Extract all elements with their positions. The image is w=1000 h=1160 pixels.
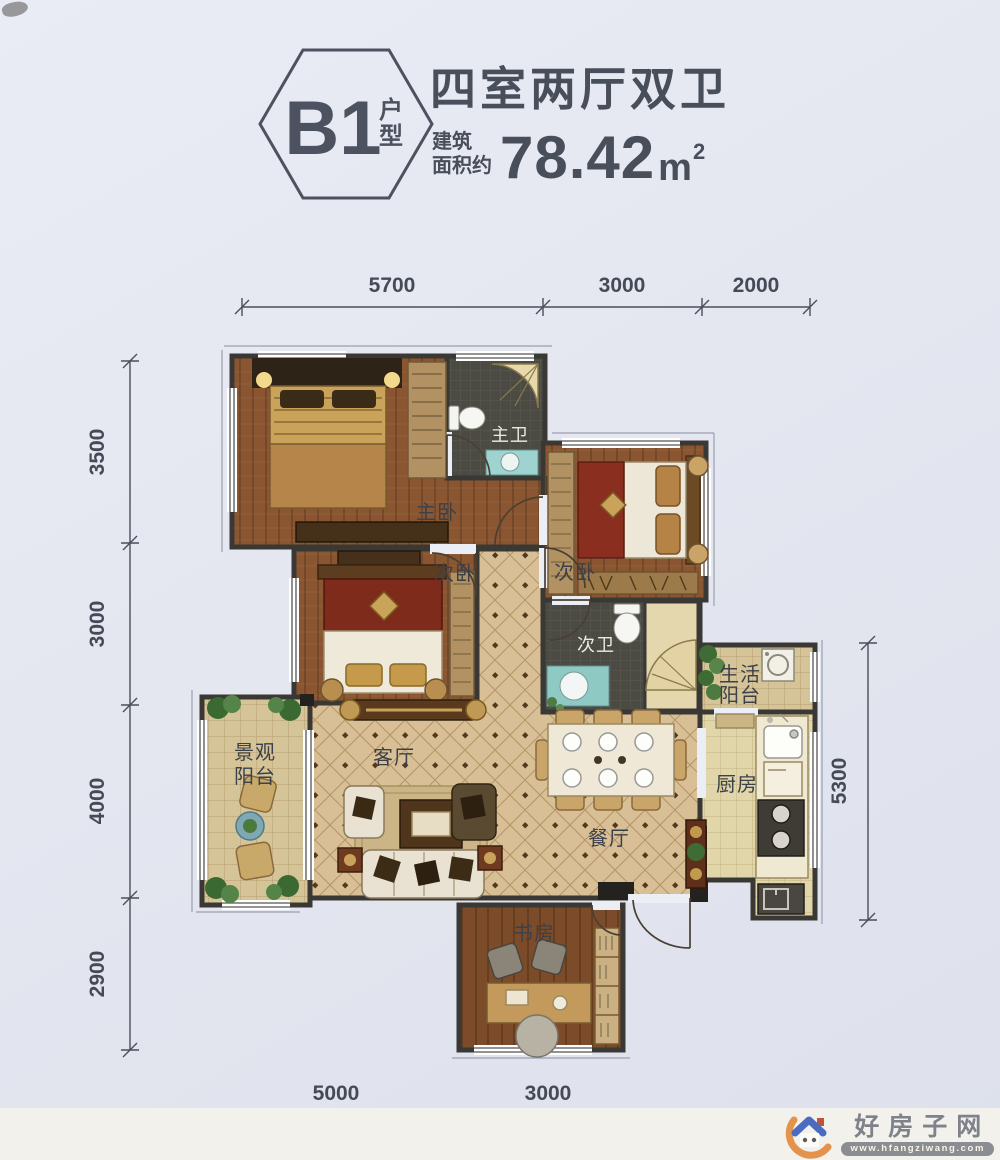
watermark-texts: 好房子网 www.hfangziwang.com xyxy=(841,1114,994,1157)
floorplan-drawing: 主卧 主卫 次卧 次卧 次卫 客厅 餐厅 厨房 书房 生活 阳台 景观 阳台 xyxy=(0,0,1000,1160)
label-master-bath: 主卫 xyxy=(491,425,529,445)
label-view-balcony-2: 阳台 xyxy=(234,765,276,788)
window-bedroom-left-side xyxy=(289,578,299,682)
site-url: www.hfangziwang.com xyxy=(841,1142,994,1156)
label-dining-room: 餐厅 xyxy=(588,827,630,850)
dim-left-2900: 2900 xyxy=(86,951,109,998)
site-logo-icon xyxy=(777,1111,837,1159)
dim-top-5700: 5700 xyxy=(369,274,416,297)
dim-top-3000: 3000 xyxy=(599,274,646,297)
label-kitchen: 厨房 xyxy=(716,773,758,796)
watermark: 好房子网 www.hfangziwang.com xyxy=(777,1111,994,1159)
label-view-balcony-1: 景观 xyxy=(234,742,276,764)
dim-right-5300: 5300 xyxy=(828,758,851,805)
window-kitchen-right xyxy=(810,732,820,868)
site-name: 好房子网 xyxy=(845,1114,990,1142)
floorplan-page: B1 户 型 四室两厅双卫 建筑 面积约 78.42 m 2 xyxy=(0,0,1000,1160)
label-bedroom-right: 次卧 xyxy=(554,561,596,584)
dim-left-3500: 3500 xyxy=(86,429,109,476)
label-study: 书房 xyxy=(513,922,555,945)
dim-top-2000: 2000 xyxy=(733,274,780,297)
label-service-balcony-2: 阳台 xyxy=(719,684,761,707)
window-master-left xyxy=(227,388,237,512)
window-service-balcony-right xyxy=(810,652,820,702)
balcony-opening-living xyxy=(303,730,314,880)
dim-left-3000: 3000 xyxy=(86,601,109,648)
window-bedroom-right-top xyxy=(562,438,680,448)
label-second-bath: 次卫 xyxy=(577,635,615,655)
dim-bottom-5000: 5000 xyxy=(313,1082,360,1105)
label-bedroom-left: 次卧 xyxy=(434,562,476,585)
label-service-balcony-1: 生活 xyxy=(719,663,761,686)
window-view-balcony-left xyxy=(197,720,207,880)
label-master-bedroom: 主卧 xyxy=(416,501,458,524)
dim-left-4000: 4000 xyxy=(86,778,109,825)
label-living-room: 客厅 xyxy=(373,746,415,769)
window-bath-top xyxy=(456,351,534,361)
dim-bottom-3000: 3000 xyxy=(525,1082,572,1105)
footer-band: 好房子网 www.hfangziwang.com xyxy=(0,1108,1000,1160)
